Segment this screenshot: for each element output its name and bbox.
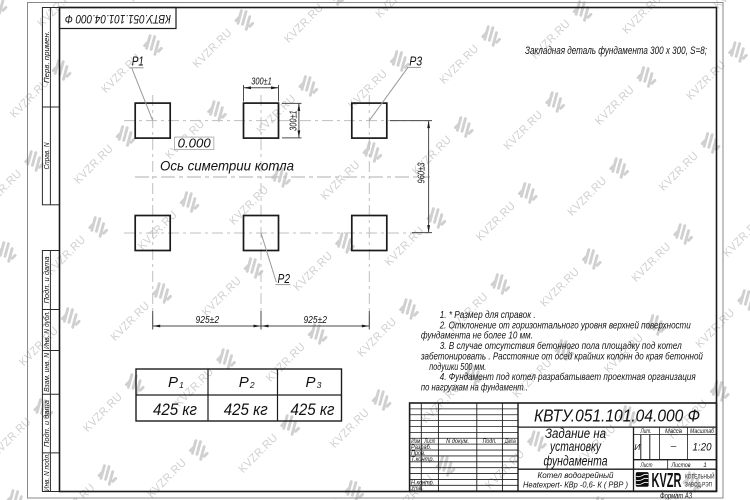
svg-text:Подп.: Подп.	[483, 438, 497, 445]
svg-text:Справ. N: Справ. N	[44, 142, 51, 170]
svg-text:Т.контр.: Т.контр.	[411, 456, 434, 463]
svg-text:Инв. N подл.: Инв. N подл.	[43, 453, 51, 491]
svg-text:КВТУ.051.101.04.000 Ф: КВТУ.051.101.04.000 Ф	[534, 405, 700, 425]
svg-text:1: 1	[179, 380, 184, 390]
svg-text:Р: Р	[305, 374, 315, 391]
svg-text:425 кг: 425 кг	[291, 401, 335, 419]
svg-text:Heatexpert- КВр -0,6- К ( РВР: Heatexpert- КВр -0,6- К ( РВР )	[523, 480, 628, 490]
svg-text:1:20: 1:20	[693, 442, 713, 454]
svg-text:Подп. и дата: Подп. и дата	[43, 256, 51, 303]
svg-text:Р: Р	[239, 374, 249, 391]
svg-text:Лист: Лист	[640, 462, 653, 469]
svg-text:Дата: Дата	[504, 438, 516, 445]
svg-text:–: –	[670, 441, 677, 452]
svg-text:Подп. и дата: Подп. и дата	[43, 400, 51, 447]
svg-text:Масштаб: Масштаб	[690, 427, 714, 435]
svg-text:Р: Р	[168, 374, 178, 391]
svg-text:Р2: Р2	[278, 272, 291, 286]
svg-text:2: 2	[249, 380, 255, 390]
svg-text:Закладная деталь фундамента 3: Закладная деталь фундамента 300 х 300, S…	[525, 45, 707, 57]
svg-text:И: И	[634, 442, 641, 452]
svg-text:Лит.: Лит.	[640, 428, 652, 435]
svg-text:Р1: Р1	[132, 54, 144, 68]
svg-text:960±3: 960±3	[417, 162, 428, 183]
svg-text:Взам. инв. N: Взам. инв. N	[44, 352, 51, 392]
svg-text:Масса: Масса	[665, 428, 682, 435]
svg-text:Утв.: Утв.	[410, 485, 422, 492]
svg-text:Котел водогрейный: Котел водогрейный	[538, 470, 614, 480]
svg-text:Листов: Листов	[671, 462, 691, 469]
svg-text:KVZR: KVZR	[652, 470, 682, 492]
svg-text:3: 3	[317, 380, 322, 390]
svg-text:Инв. N дубл.: Инв. N дубл.	[43, 311, 51, 349]
svg-text:1: 1	[703, 462, 707, 469]
svg-text:Ось симетрии котла: Ось симетрии котла	[160, 157, 294, 173]
svg-text:0.000: 0.000	[178, 136, 212, 151]
svg-text:300±1: 300±1	[251, 77, 272, 88]
svg-text:Перв. примен.: Перв. примен.	[44, 31, 51, 83]
svg-text:925±2: 925±2	[303, 315, 327, 326]
svg-text:Формат А3: Формат А3	[660, 491, 692, 500]
svg-text:по нагрузкам на фундамент .: по нагрузкам на фундамент .	[421, 381, 528, 393]
svg-text:925±2: 925±2	[196, 315, 220, 326]
svg-text:425 кг: 425 кг	[153, 401, 197, 419]
svg-text:КВТУ.051.101.04.000 Ф: КВТУ.051.101.04.000 Ф	[65, 12, 171, 26]
svg-text:N докум.: N докум.	[446, 438, 469, 445]
svg-text:300±1: 300±1	[288, 110, 299, 131]
svg-text:Р3: Р3	[409, 54, 422, 68]
svg-text:фундамента: фундамента	[544, 454, 608, 469]
svg-text:ЗАВОД РЭП: ЗАВОД РЭП	[685, 482, 712, 489]
svg-text:425 кг: 425 кг	[224, 401, 268, 419]
svg-text:КОТЕЛЬНЫЙ: КОТЕЛЬНЫЙ	[685, 472, 715, 481]
svg-text:установку: установку	[549, 439, 602, 454]
